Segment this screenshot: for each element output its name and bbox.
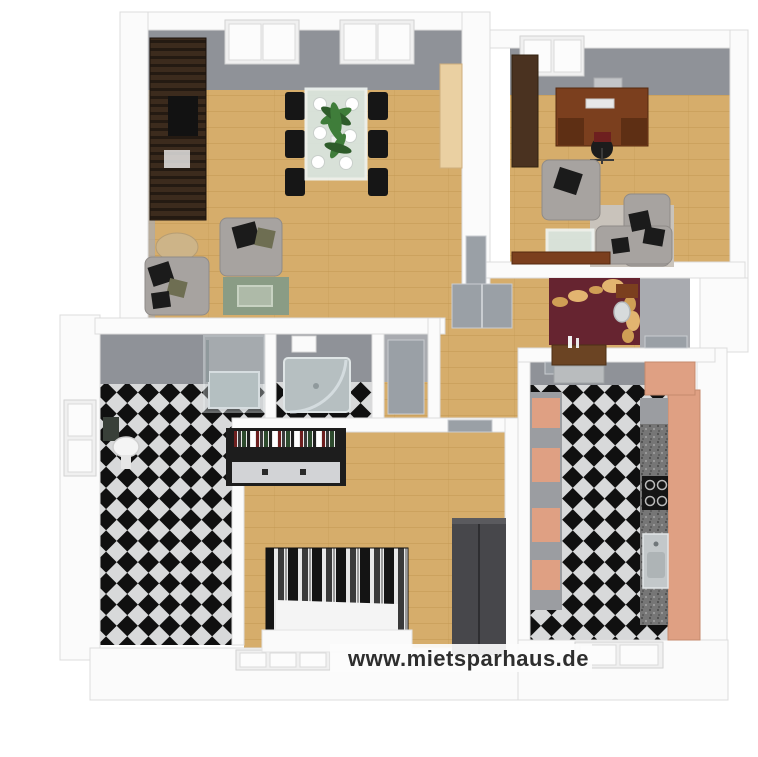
tv <box>168 96 198 136</box>
wall-kitchen-north <box>518 348 715 362</box>
window-living-2 <box>340 20 414 64</box>
exterior-wall-right-office <box>730 30 748 286</box>
dining-chair <box>285 92 305 120</box>
faucet <box>654 542 659 547</box>
open-shelf <box>532 398 560 428</box>
drawer-handle <box>300 469 306 475</box>
door-hall-split-line <box>481 284 483 328</box>
decor-oval <box>589 286 603 294</box>
kitchen-run <box>640 362 700 640</box>
wall-bath-divider-1 <box>265 334 276 430</box>
wall-cabinet <box>103 417 119 441</box>
sink-basin <box>647 552 665 578</box>
dresser-with-books <box>226 428 346 486</box>
decor-oval <box>568 290 588 302</box>
cooktop <box>642 476 668 510</box>
folded-sheet <box>276 600 398 634</box>
exterior-wall-left-living <box>120 12 148 334</box>
fridge-surround <box>645 362 695 395</box>
watermark-text: www.mietsparhaus.de <box>347 646 589 671</box>
tall-shelf-units <box>530 392 562 610</box>
washbasin-pedestal <box>121 455 131 469</box>
vase <box>568 336 572 348</box>
wall-kitchen-west <box>518 348 530 640</box>
wardrobe-top <box>452 518 506 524</box>
tall-birch-cabinet <box>440 64 462 168</box>
desk-drawers-right <box>621 118 647 145</box>
plate <box>340 157 353 170</box>
glass-coffee-table <box>547 230 593 254</box>
dining-chair <box>285 130 305 158</box>
floorplan-screenshot: www.mietsparhaus.de <box>0 0 758 757</box>
open-shelf <box>532 508 560 542</box>
dresser-drawers <box>232 462 340 483</box>
washbasin <box>113 437 139 457</box>
open-shelf <box>532 448 560 482</box>
wall-closet-hall <box>428 318 440 430</box>
granite-counter <box>640 415 668 625</box>
exterior-wall-right-kitchen <box>697 348 727 668</box>
watermark: www.mietsparhaus.de <box>330 644 592 672</box>
decor-oval <box>552 297 568 307</box>
plate <box>314 127 327 140</box>
floorplan-render: www.mietsparhaus.de <box>0 0 758 757</box>
door-bedroom <box>448 420 492 432</box>
office-sideboard <box>512 252 610 264</box>
door-closet <box>388 340 424 414</box>
exterior-wall-left-lower <box>60 315 100 660</box>
plate <box>312 156 325 169</box>
dining-chair <box>285 168 305 196</box>
shower-drain <box>313 383 319 389</box>
pillow <box>643 226 666 246</box>
bathtub <box>209 372 259 408</box>
decor-oval <box>622 329 634 343</box>
pillow <box>151 291 171 309</box>
wall-shelf <box>616 284 638 298</box>
vase <box>576 338 579 348</box>
office-chair-back <box>594 132 611 142</box>
towel <box>292 336 316 352</box>
wardrobe-door-split <box>478 524 480 655</box>
dining-chair <box>368 130 388 158</box>
exterior-wall-step-right <box>700 278 748 352</box>
media-shelf-item <box>164 150 190 168</box>
wall-bath-divider-2 <box>372 334 384 430</box>
door-hall-east <box>645 336 687 348</box>
shower-column <box>206 340 209 382</box>
salmon-cabinets <box>668 390 700 640</box>
console-cabinet <box>554 366 604 383</box>
open-shelf <box>532 560 560 590</box>
window-living-1 <box>225 20 299 64</box>
wall-bedroom-east <box>505 418 518 655</box>
tall-wardrobe <box>512 55 538 167</box>
desk-drawers-left <box>558 118 584 145</box>
keyboard <box>586 99 614 108</box>
sink <box>643 534 668 588</box>
wardrobe <box>452 518 506 655</box>
window-bedroom <box>236 650 330 670</box>
coffee-table <box>238 286 272 306</box>
books-row <box>234 431 338 447</box>
pillow <box>254 227 275 248</box>
exterior-wall-top-living <box>134 12 490 30</box>
wall-mirror <box>614 302 630 322</box>
wall-living-south <box>95 318 445 334</box>
pillow <box>611 237 630 254</box>
extractor-unit <box>640 398 668 424</box>
dining-set <box>285 89 388 196</box>
double-bed <box>262 548 412 652</box>
dining-chair <box>368 92 388 120</box>
dining-chair <box>368 168 388 196</box>
window-bathroom <box>64 400 96 476</box>
drawer-handle <box>262 469 268 475</box>
